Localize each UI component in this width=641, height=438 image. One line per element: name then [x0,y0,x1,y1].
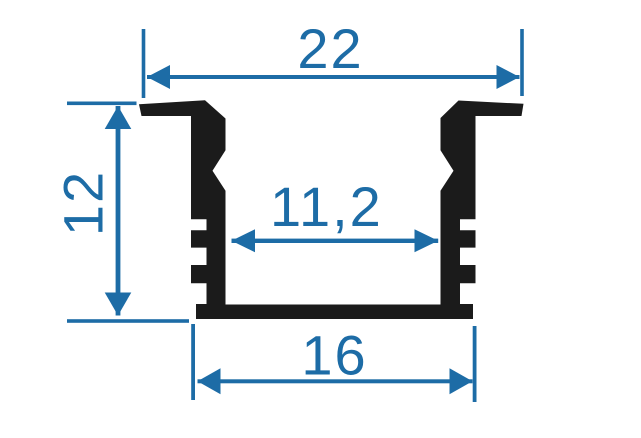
svg-text:11,2: 11,2 [270,175,383,238]
svg-text:16: 16 [301,324,367,387]
svg-text:22: 22 [297,17,363,80]
svg-text:12: 12 [52,170,115,236]
